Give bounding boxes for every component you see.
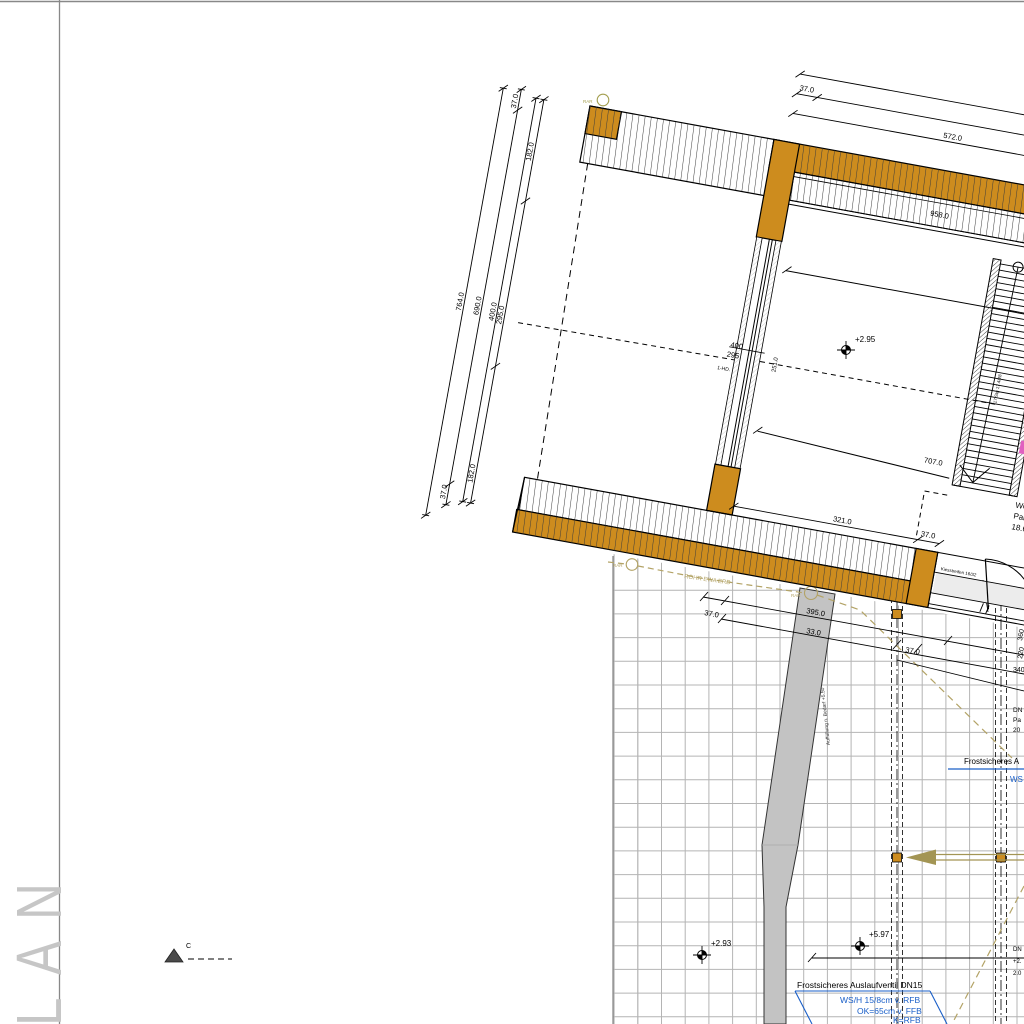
svg-text:K=RFB: K=RFB [893, 1015, 921, 1024]
svg-text:360: 360 [1017, 629, 1024, 642]
svg-text:RAR: RAR [613, 563, 623, 568]
svg-text:340: 340 [1013, 667, 1024, 674]
svg-text:Frostsicheres A: Frostsicheres A [964, 757, 1020, 766]
svg-text:+5.97: +5.97 [869, 930, 890, 939]
svg-text:DN: DN [1013, 947, 1022, 953]
svg-text:N: N [5, 883, 76, 920]
svg-text:2.0: 2.0 [1013, 971, 1022, 977]
svg-text:L: L [5, 998, 76, 1024]
svg-text:RAR: RAR [583, 99, 593, 104]
svg-text:WS/H 15/8cm v. RFB: WS/H 15/8cm v. RFB [840, 995, 920, 1005]
svg-text:+2.: +2. [1013, 959, 1022, 965]
svg-text:+2.95: +2.95 [855, 335, 876, 344]
svg-text:+2.93: +2.93 [711, 939, 732, 948]
svg-text:A: A [5, 941, 76, 975]
svg-text:Frostsicheres Auslaufventil DN: Frostsicheres Auslaufventil DN15 [797, 980, 922, 990]
svg-text:C: C [186, 943, 191, 950]
svg-text:RAR: RAR [791, 593, 801, 598]
svg-text:DN: DN [1013, 707, 1023, 714]
svg-text:220: 220 [1017, 647, 1024, 660]
svg-text:WS: WS [1010, 775, 1023, 784]
svg-text:20: 20 [1013, 727, 1021, 734]
svg-text:Pa: Pa [1013, 717, 1021, 724]
